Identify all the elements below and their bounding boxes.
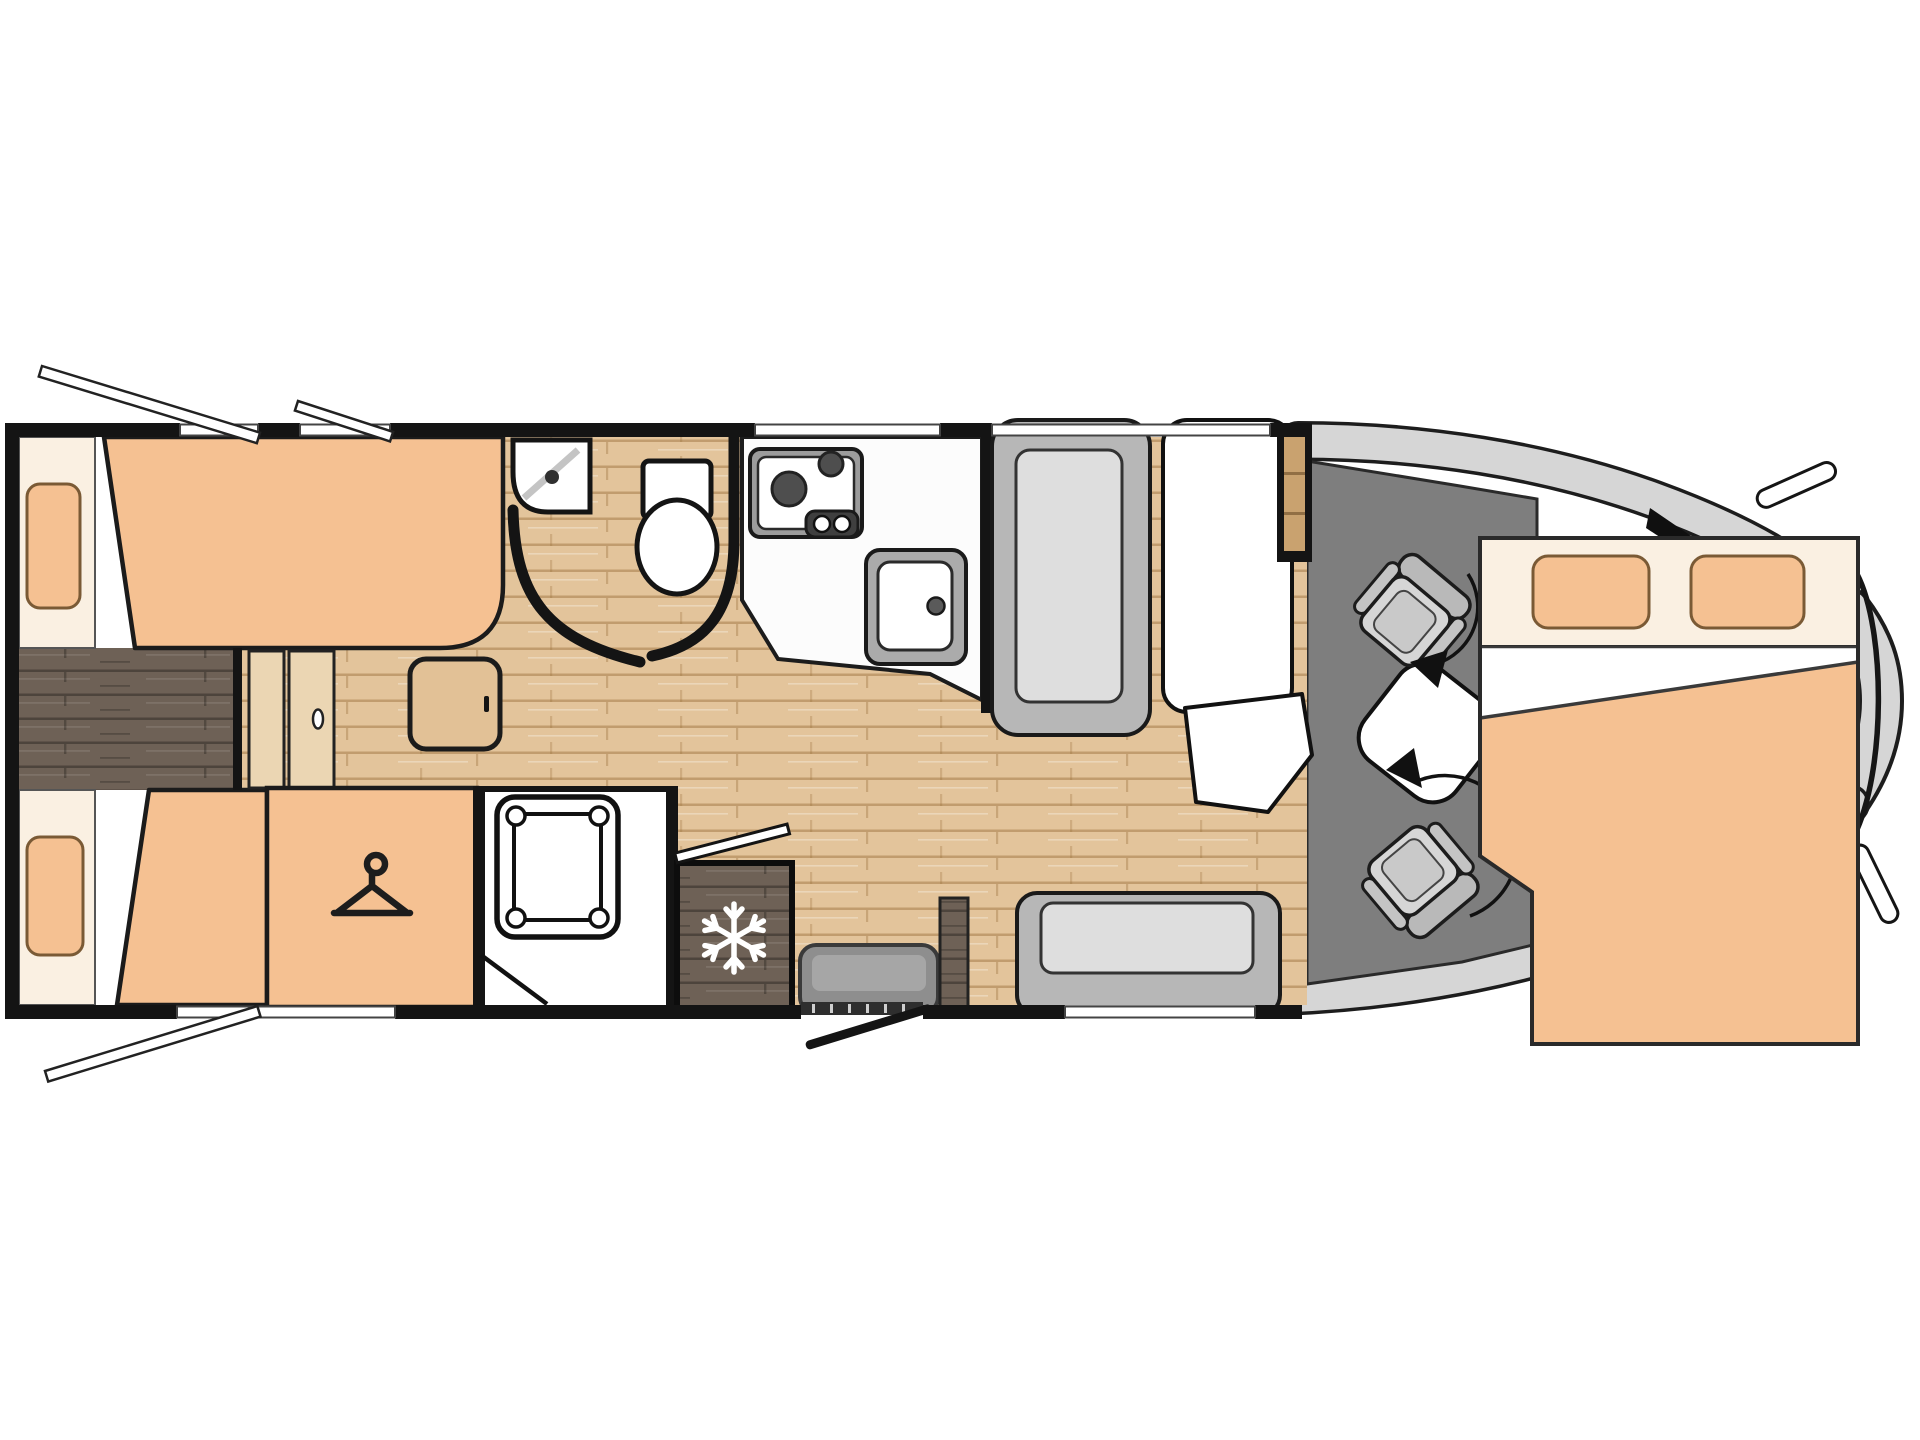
window-bottom-bedroom (177, 1007, 395, 1018)
bedroom-door-panel-2 (289, 651, 334, 788)
floorplan-page (0, 0, 1920, 1440)
forward-bench-cushion (1016, 450, 1122, 702)
side-table-handle (484, 696, 489, 712)
shower-room (473, 786, 678, 1007)
bedroom-walkway-dark-wood (19, 648, 233, 790)
shower-room-wall-left (473, 786, 485, 1007)
bedroom-door-handle (313, 710, 323, 729)
twin-single-bed-upper (104, 437, 503, 648)
upper-bed-pillow (27, 484, 80, 608)
wing-mirror-top-icon (1754, 460, 1838, 511)
dinette-table (1163, 420, 1292, 712)
overcab-bed-duvet (1480, 662, 1858, 1044)
wall-top-4 (940, 423, 992, 437)
shower-tray-corner-3 (507, 909, 525, 927)
floorplan-canvas (0, 0, 1920, 1440)
walkway-door-divider-wall (233, 648, 242, 790)
toilet-bowl (637, 500, 717, 594)
shower-tray-corner-2 (590, 807, 608, 825)
hob-knob-1 (814, 516, 830, 532)
window-top-lounge (992, 425, 1270, 436)
wall-top-1 (5, 423, 180, 437)
hob-knob-2 (834, 516, 850, 532)
window-bottom-lounge (1065, 1007, 1255, 1018)
shower-room-wall-top (473, 786, 678, 792)
wall-top-3 (390, 423, 755, 437)
hob-burner-small (819, 452, 843, 476)
window-top-kitchen (755, 425, 940, 436)
overcab-bed-pillow-right (1691, 556, 1804, 628)
wall-left (5, 423, 19, 1019)
washbasin-drain (545, 470, 559, 484)
side-bench-cushion (1041, 903, 1253, 973)
overcab-double-bed (1480, 538, 1858, 1044)
overcab-bed-pillow-left (1533, 556, 1649, 628)
lower-bed-pillow (27, 837, 83, 955)
wall-bottom-3 (923, 1005, 1065, 1019)
wall-bottom-4 (1255, 1005, 1302, 1019)
wardrobe (267, 788, 477, 1007)
tall-cabinet-grain2 (1284, 512, 1305, 515)
shower-tray-corner-4 (590, 909, 608, 927)
shower-tray-inner (514, 814, 601, 920)
entry-door (801, 1002, 933, 1050)
entry-step-inner (812, 955, 926, 991)
wall-top-2 (258, 423, 300, 437)
shower-tray-corner-1 (507, 807, 525, 825)
side-cabinet (940, 898, 968, 1008)
hob-burner-large (772, 472, 806, 506)
bedroom-door-panel-1 (249, 651, 284, 788)
sink-tap (928, 598, 945, 615)
tall-cabinet-wood (1284, 436, 1305, 551)
tall-cabinet-grain (1284, 472, 1305, 475)
wall-bottom-2 (395, 1005, 801, 1019)
wall-bottom-1 (5, 1005, 177, 1019)
wall-top-5 (1270, 423, 1312, 437)
